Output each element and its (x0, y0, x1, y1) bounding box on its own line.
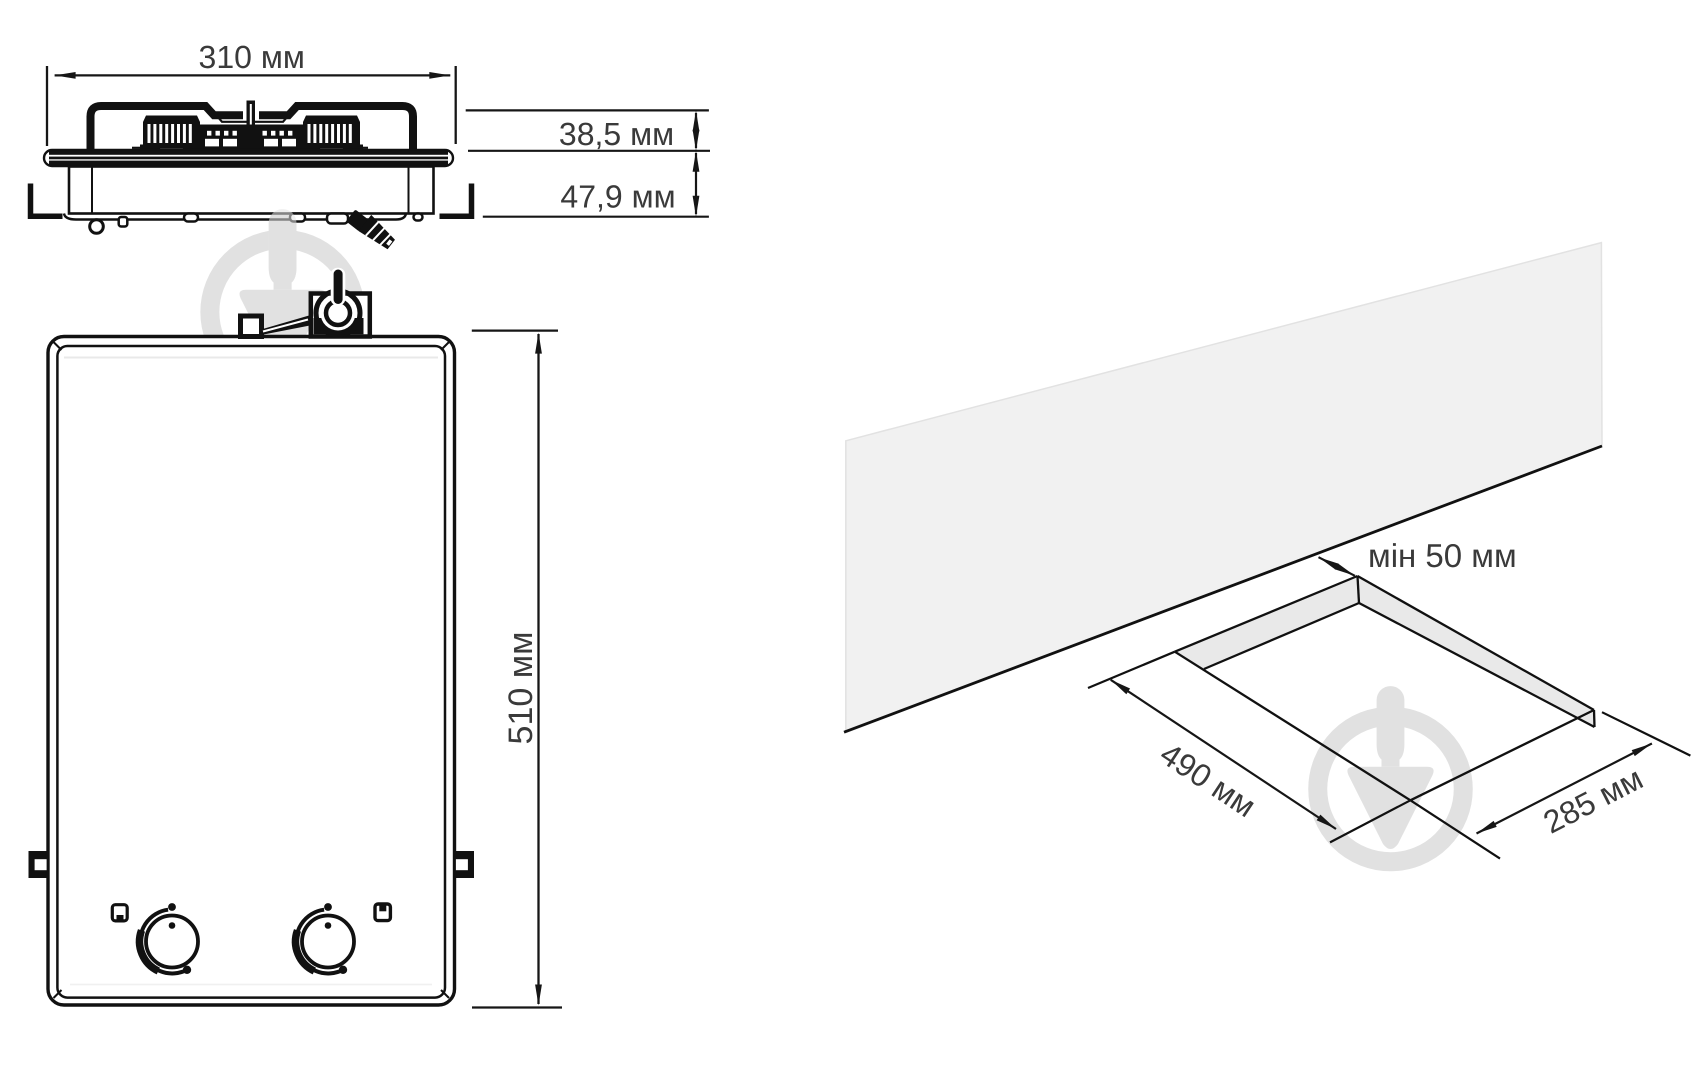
svg-text:мін 50 мм: мін 50 мм (1368, 537, 1517, 574)
svg-text:510 мм: 510 мм (502, 632, 540, 745)
svg-text:310 мм: 310 мм (199, 39, 305, 75)
svg-text:38,5 мм: 38,5 мм (559, 116, 674, 152)
svg-text:47,9 мм: 47,9 мм (560, 179, 675, 215)
